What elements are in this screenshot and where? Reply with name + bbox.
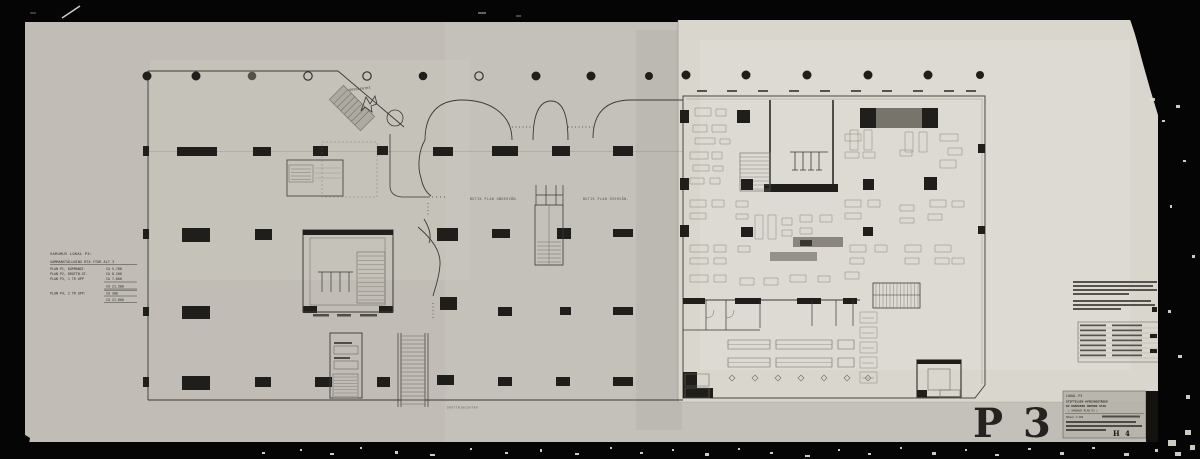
legend-row-value: CA 8.200 xyxy=(106,272,122,276)
title-line4: ( VARUHUS PLAN P3 ) xyxy=(1068,409,1098,413)
area-label-right: BUTIK PLAN ÖVERVÅN. xyxy=(583,196,629,201)
legend-extra-label: PLAN P4, 2 TR UPP: xyxy=(50,292,86,296)
sheet-stamp: P 3 xyxy=(973,400,1054,447)
legend-row-label: PLAN P2, DROTTN.GT. xyxy=(50,272,88,276)
legend-extra-value: CA 300 xyxy=(106,292,118,296)
title-line2: STIFTELSEN HYRESBOSTÄDER xyxy=(1066,399,1108,404)
dark-fixture-band xyxy=(860,108,938,128)
legend-row-value: CA 5.700 xyxy=(106,267,122,271)
title-line3: KV KRÄMAREN ÖREBRO STAD xyxy=(1066,403,1106,408)
floor-plan-photo: HUVUDENTRÉ xyxy=(0,0,1200,459)
legend-row-value: CA 7.600 xyxy=(106,277,122,281)
photo-of-drawing: HUVUDENTRÉ xyxy=(0,0,1200,459)
legend-title: VARUHUS LOKAL P3: xyxy=(50,251,92,256)
area-label-left: BUTIK PLAN UNDERVÅN. xyxy=(470,196,518,201)
legend-row-label: PLAN P1, KÖPMANGT. xyxy=(50,266,86,271)
legend-subtitle: SAMMANSTÄLLNING BTA YTOR ALT 3 xyxy=(50,259,114,264)
titleblock-mark: H 4 xyxy=(1113,429,1131,438)
legend-total: CA 21.800 xyxy=(106,298,124,302)
street-label: DROTTNINGGATAN xyxy=(447,406,478,410)
legend-row-label: PLAN P3, 1 TR UPP xyxy=(50,277,84,281)
title-line1: LOKAL P3 xyxy=(1066,394,1082,398)
title-scale: SKALA 1:200 xyxy=(1066,415,1084,419)
title-block: LOKAL P3 STIFTELSEN HYRESBOSTÄDER KV KRÄ… xyxy=(1063,391,1158,442)
legend-subtotal: CA 21.500 xyxy=(106,285,124,289)
